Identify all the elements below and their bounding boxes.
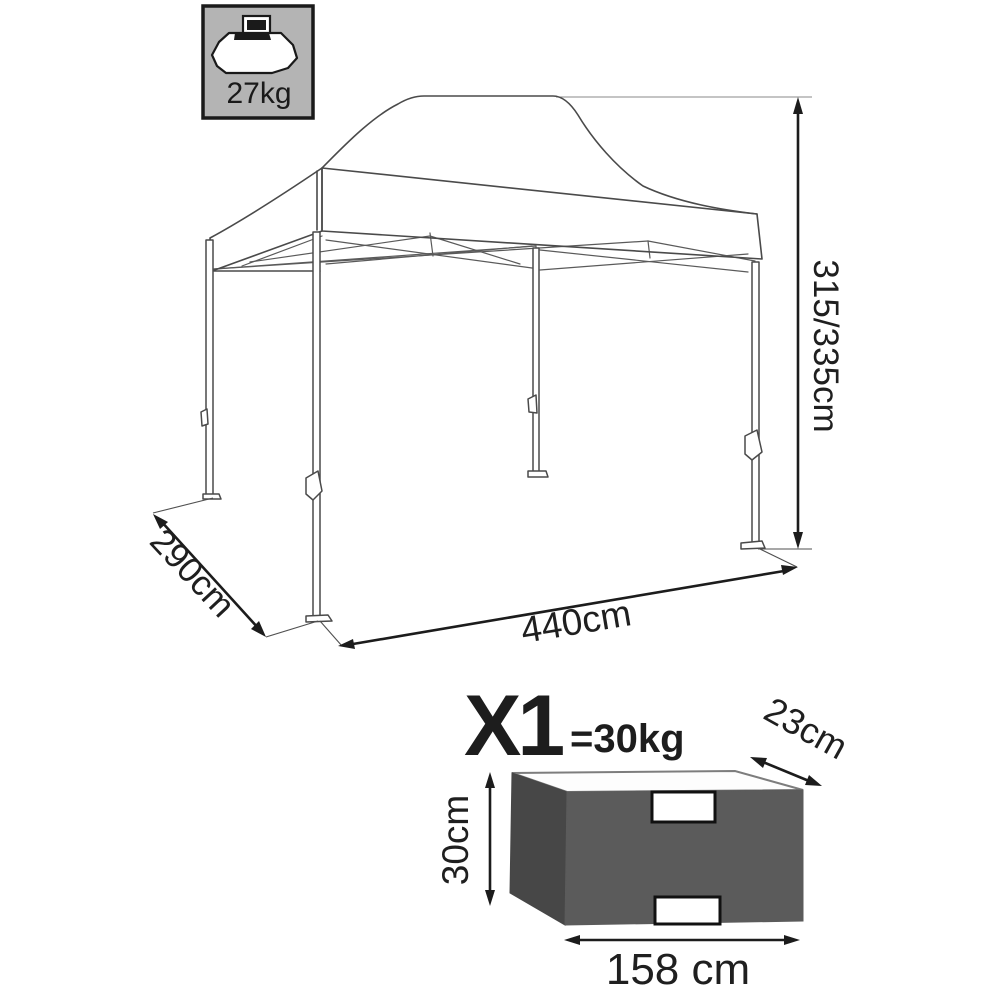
package-depth-label: 23cm [758, 689, 855, 768]
middle-leg-clip [528, 395, 537, 413]
front-left-leg [313, 232, 320, 618]
package-weight-label: =30kg [570, 717, 685, 761]
back-left-clip [201, 409, 208, 426]
package-height-dimension: 30cm [435, 772, 495, 906]
package-section: X1 =30kg 23cm 30cm 15 [435, 678, 854, 994]
middle-leg [533, 248, 539, 473]
diagram-canvas: 27kg [0, 0, 1000, 1000]
package-depth-dimension: 23cm [750, 689, 854, 786]
legs [201, 232, 765, 622]
front-left-foot [306, 615, 332, 622]
package-quantity-label: X1 [464, 678, 563, 774]
height-dimension-label: 315/335cm [806, 259, 845, 432]
depth-dimension-label: 290cm [142, 521, 242, 624]
product-spec-diagram: 27kg [0, 0, 1000, 1000]
package-width-dimension: 158 cm [564, 935, 800, 994]
depth-dimension: 290cm [142, 498, 318, 637]
width-dimension: 440cm [320, 549, 798, 651]
front-right-leg [752, 262, 759, 545]
capacity-badge: 27kg [203, 6, 313, 118]
package-width-label: 158 cm [606, 945, 750, 994]
package-box [510, 771, 803, 925]
gazebo-drawing [201, 96, 812, 622]
box-left-face [510, 773, 567, 925]
middle-leg-foot [528, 471, 548, 477]
box-bottom-handle [655, 897, 720, 924]
capacity-badge-label: 27kg [226, 77, 291, 110]
canopy-eave-edge [322, 168, 757, 214]
width-dimension-label: 440cm [518, 592, 634, 651]
back-left-leg [206, 240, 213, 496]
canopy-left-valance [210, 168, 322, 271]
box-top-handle [652, 792, 715, 822]
package-height-label: 30cm [435, 795, 476, 885]
canopy-front [322, 96, 762, 259]
front-right-foot [741, 541, 765, 549]
height-dimension: 315/335cm [758, 97, 845, 549]
truss-frame [214, 233, 755, 272]
